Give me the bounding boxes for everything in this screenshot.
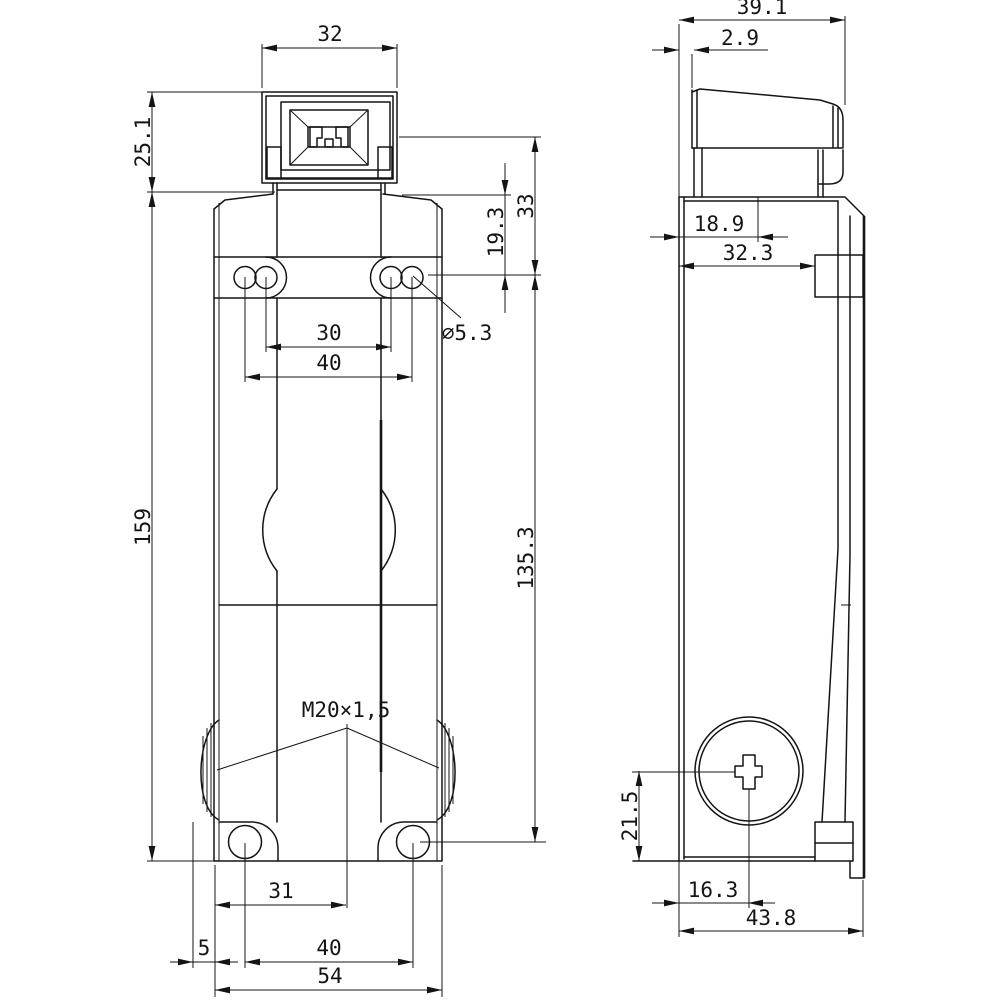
cable-gland-cap-right [437,720,455,820]
slot-band [214,257,442,298]
dimension-drawing: 32 25.1 159 33 19.3 135.3 ⌀5.3 [0,0,1000,1000]
body-bottom-edge [633,857,815,861]
front-view-dimensions: 32 25.1 159 33 19.3 135.3 ⌀5.3 [131,22,546,997]
dim-edge-to-gland: 31 [268,879,293,903]
mounting-plate [822,201,864,878]
dim-plunger-plane: 18.9 [694,212,745,236]
dim-slot-pitch-outer: 40 [316,351,341,375]
phillips-cross [735,755,762,789]
dim-head-width: 32 [317,22,342,46]
dim-head-setback: 2.9 [721,26,759,50]
dim-slot-to-gland: 135.3 [514,526,538,589]
body-inner-edges [219,203,437,861]
dim-head-depth: 39.1 [737,0,788,19]
dim-gland-center-height: 21.5 [618,791,642,842]
front-view: 32 25.1 159 33 19.3 135.3 ⌀5.3 [131,22,546,997]
side-view-outline [632,24,864,937]
neck [273,183,385,194]
clamp-block-top [815,255,863,297]
center-boss-bulge [263,489,396,571]
gland-thread-leader [217,724,439,908]
dim-body-depth: 32.3 [723,241,774,265]
head-side-tabs [267,147,392,178]
dim-head-height: 25.1 [131,117,155,168]
dim-slot-pitch-inner: 30 [316,321,341,345]
dim-gland-center-depth: 16.3 [688,878,739,902]
head-funnel-inner [308,127,350,147]
side-view: 39.1 2.9 18.9 32.3 21.5 16.3 43 [618,0,864,937]
dim-slot-to-top: 19.3 [484,207,508,258]
clamp-block-bottom [815,822,853,861]
front-view-outline [201,92,455,861]
technical-drawing-page: 32 25.1 159 33 19.3 135.3 ⌀5.3 [0,0,1000,1000]
head-opening [290,110,368,165]
dim-cap-protrusion: 5 [198,936,211,960]
dim-total-height: 159 [131,508,155,546]
head-side [692,89,843,197]
dim-base-width: 54 [317,964,342,988]
dim-hole-pitch-bottom: 40 [316,936,341,960]
cable-gland-cap-left [201,720,219,820]
dim-overall-depth: 43.8 [746,906,797,930]
label-gland-thread: M20×1,5 [302,698,391,722]
front-face [679,197,684,861]
inner-columns [277,194,381,822]
side-view-dimensions: 39.1 2.9 18.9 32.3 21.5 16.3 43 [618,0,863,937]
head-funnel-side [818,150,843,197]
body-outline [214,194,442,861]
dim-slot-to-actuator: 33 [514,193,538,218]
head-inner-frame [266,96,393,179]
actuator-slot-icon [310,127,348,147]
dim-hole-diameter: ⌀5.3 [442,321,493,345]
head-funnel-diagonals [290,110,368,165]
